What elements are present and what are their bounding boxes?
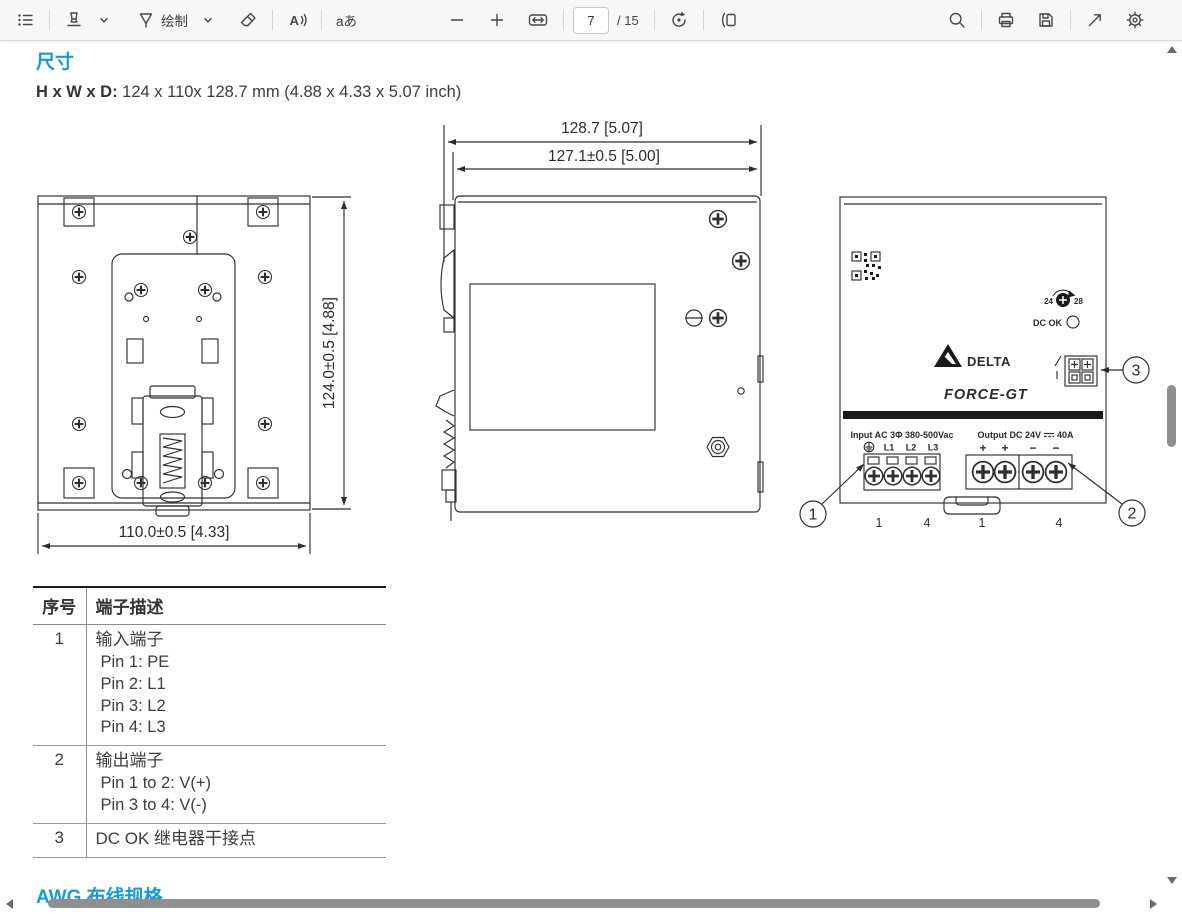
table-header-number: 序号	[33, 587, 86, 625]
row-number: 1	[33, 625, 86, 746]
horizontal-scrollbar-thumb[interactable]	[48, 899, 1100, 908]
scrollbar-right-arrow[interactable]	[1150, 899, 1157, 909]
dc-ok-label: DC OK	[1033, 318, 1063, 328]
toolbar-divider	[703, 10, 704, 30]
zoom-in-button[interactable]	[482, 6, 512, 34]
toc-button[interactable]	[10, 6, 40, 34]
pot-min-label: 24	[1044, 297, 1053, 306]
input-label: Input AC 3Φ 380-500Vac	[850, 430, 953, 440]
input-pin-l1: L1	[884, 443, 895, 453]
eraser-icon	[238, 10, 258, 30]
output-label-right: 40A	[1057, 430, 1074, 440]
pen-icon	[136, 10, 156, 30]
rear-height-dimension: 124.0±0.5 [4.88]	[321, 297, 338, 409]
pe-ground-symbol	[864, 442, 874, 452]
dimensions-value: 124 x 110x 128.7 mm (4.88 x 4.33 x 5.07 …	[118, 83, 462, 101]
row-number: 3	[33, 823, 86, 857]
scrollbar-down-arrow[interactable]	[1167, 877, 1177, 884]
table-row: 2 输出端子 Pin 1 to 2: V(+) Pin 3 to 4: V(-)	[33, 746, 386, 824]
text-tools-label: aあ	[336, 10, 357, 30]
output-plus-1: +	[979, 441, 986, 455]
pin-detail: Pin 4: L3	[96, 717, 387, 739]
plus-icon	[487, 10, 507, 30]
fit-width-icon	[527, 10, 549, 30]
settings-button[interactable]	[1120, 6, 1150, 34]
highlighter-icon	[64, 10, 84, 30]
save-icon	[1036, 10, 1056, 30]
table-row: 3 DC OK 继电器干接点	[33, 823, 386, 857]
search-button[interactable]	[942, 6, 972, 34]
toolbar-divider	[1070, 10, 1071, 30]
callout-1-number: 1	[809, 507, 818, 524]
brand-text: DELTA	[967, 354, 1011, 369]
toolbar-divider	[654, 10, 655, 30]
draw-dropdown[interactable]	[197, 10, 219, 30]
pdf-page: 尺寸 H x W x D: 124 x 110x 128.7 mm (4.88 …	[0, 41, 1182, 914]
zoom-out-button[interactable]	[442, 6, 472, 34]
dimensions-label: H x W x D:	[36, 83, 118, 101]
toolbar-divider	[49, 10, 50, 30]
page-count-label: / 15	[617, 13, 639, 28]
pin-detail: Pin 2: L1	[96, 674, 387, 696]
table-header-row: 序号 端子描述	[33, 587, 386, 625]
model-text: FORCE-GT	[944, 387, 1028, 403]
svg-text:A: A	[290, 13, 300, 28]
output-pin-no-last: 4	[1056, 516, 1063, 530]
page-view-icon	[718, 10, 738, 30]
voltage-adjust-pot: 24 28	[1044, 290, 1083, 307]
front-view-drawing: 24 28 DC OK DELTA FORCE-GT	[800, 197, 1149, 530]
row-number: 2	[33, 746, 86, 824]
gear-icon	[1125, 10, 1145, 30]
row-description: DC OK 继电器干接点	[86, 823, 386, 857]
chevron-down-icon	[98, 14, 110, 26]
dimensions-text: H x W x D: 124 x 110x 128.7 mm (4.88 x 4…	[36, 83, 461, 102]
toolbar-divider	[272, 10, 273, 30]
read-aloud-icon: A	[287, 10, 307, 30]
output-pin-no-first: 1	[979, 516, 986, 530]
pot-max-label: 28	[1074, 297, 1083, 306]
scrollbar-left-arrow[interactable]	[6, 899, 13, 909]
output-label-left: Output DC 24V	[977, 430, 1041, 440]
table-header-description: 端子描述	[86, 587, 386, 625]
terminal-table: 序号 端子描述 1 输入端子 Pin 1: PE Pin 2: L1 Pin 3…	[33, 586, 386, 858]
toolbar-divider	[981, 10, 982, 30]
read-aloud-button[interactable]: A	[282, 6, 312, 34]
save-button[interactable]	[1031, 6, 1061, 34]
search-icon	[947, 10, 967, 30]
toolbar-divider	[563, 10, 564, 30]
relay-contact-connector	[1055, 356, 1097, 386]
side-inner-depth-dimension: 127.1±0.5 [5.00]	[548, 148, 660, 165]
highlighter-button[interactable]	[59, 6, 89, 34]
chevron-down-icon	[202, 14, 214, 26]
delta-logo: DELTA	[934, 344, 1011, 369]
draw-button-label: 绘制	[161, 10, 188, 30]
vertical-scrollbar-thumb[interactable]	[1167, 385, 1176, 447]
pin-detail: Pin 1 to 2: V(+)	[96, 773, 387, 795]
pin-detail: Pin 3: L2	[96, 696, 387, 718]
toolbar-divider	[321, 10, 322, 30]
technical-drawings: 124.0±0.5 [4.88] 110.0±0.5 [4.33] 128.7 …	[0, 113, 1182, 565]
side-view-drawing: 128.7 [5.07] 127.1±0.5 [5.00]	[436, 120, 763, 521]
qr-code	[852, 252, 881, 280]
highlighter-dropdown[interactable]	[93, 10, 115, 30]
side-outer-depth-dimension: 128.7 [5.07]	[561, 120, 643, 137]
section-title: 尺寸	[36, 47, 74, 74]
terminal-title: 输入端子	[96, 628, 387, 652]
table-of-contents-icon	[15, 10, 35, 30]
scrollbar-up-arrow[interactable]	[1167, 46, 1177, 53]
rotate-icon	[669, 10, 689, 30]
callout-3-number: 3	[1132, 363, 1141, 380]
print-button[interactable]	[991, 6, 1021, 34]
output-plus-2: +	[1001, 441, 1008, 455]
expand-icon	[1085, 10, 1105, 30]
print-icon	[996, 10, 1016, 30]
expand-button[interactable]	[1080, 6, 1110, 34]
dc-symbol	[1044, 434, 1054, 437]
rear-view-drawing: 124.0±0.5 [4.88] 110.0±0.5 [4.33]	[38, 196, 351, 554]
draw-button[interactable]: 绘制	[131, 6, 193, 34]
rear-width-dimension: 110.0±0.5 [4.33]	[119, 524, 230, 541]
page-number-input[interactable]	[573, 7, 609, 34]
input-pin-l2: L2	[906, 443, 917, 453]
rotate-button[interactable]	[664, 6, 694, 34]
callout-2-number: 2	[1128, 506, 1137, 523]
pin-detail: Pin 1: PE	[96, 652, 387, 674]
pin-detail: Pin 3 to 4: V(-)	[96, 795, 387, 817]
output-terminal-block	[966, 455, 1072, 489]
output-minus-1: −	[1029, 441, 1036, 455]
table-row: 1 输入端子 Pin 1: PE Pin 2: L1 Pin 3: L2 Pin…	[33, 625, 386, 746]
input-pin-no-first: 1	[876, 516, 883, 530]
row-description: 输出端子 Pin 1 to 2: V(+) Pin 3 to 4: V(-)	[86, 746, 386, 824]
fit-width-button[interactable]	[522, 6, 554, 34]
terminal-title: DC OK 继电器干接点	[96, 827, 387, 851]
output-minus-2: −	[1052, 441, 1059, 455]
page-view-button[interactable]	[713, 6, 743, 34]
input-pin-l3: L3	[928, 443, 939, 453]
eraser-button[interactable]	[233, 6, 263, 34]
row-description: 输入端子 Pin 1: PE Pin 2: L1 Pin 3: L2 Pin 4…	[86, 625, 386, 746]
terminal-title: 输出端子	[96, 749, 387, 773]
input-terminal-block	[864, 454, 940, 490]
minus-icon	[447, 10, 467, 30]
input-pin-no-last: 4	[924, 516, 931, 530]
dc-ok-led	[1067, 316, 1079, 328]
text-tools-button[interactable]: aあ	[331, 6, 362, 34]
pdf-toolbar: 绘制 A aあ	[0, 0, 1182, 41]
